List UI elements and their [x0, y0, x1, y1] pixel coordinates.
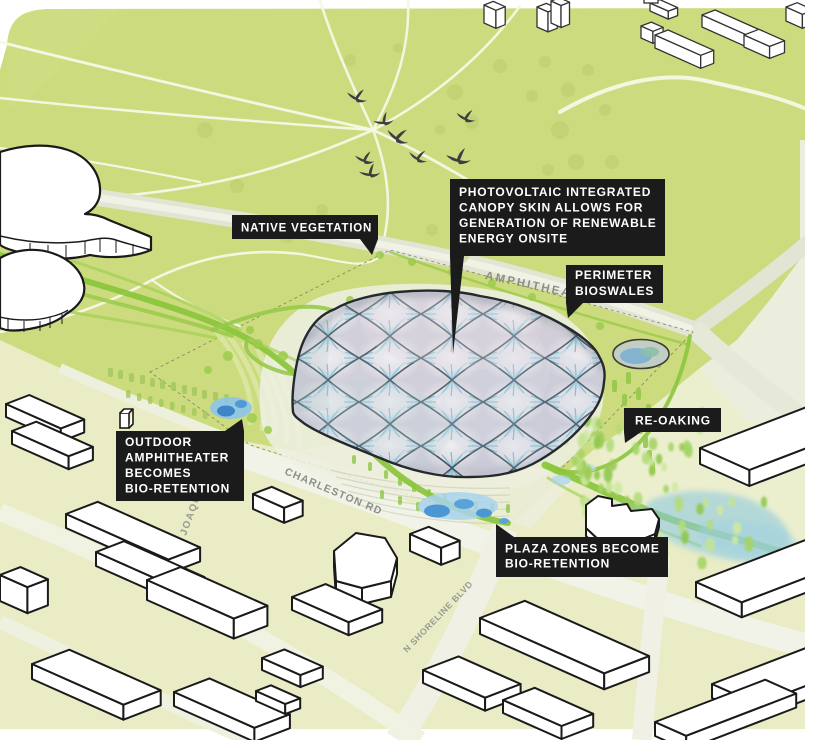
- svg-text:BECOMES: BECOMES: [125, 466, 191, 480]
- svg-text:PHOTOVOLTAIC INTEGRATED: PHOTOVOLTAIC INTEGRATED: [459, 185, 651, 199]
- svg-text:OUTDOOR: OUTDOOR: [125, 435, 192, 449]
- svg-text:PERIMETER: PERIMETER: [575, 268, 652, 282]
- svg-text:BIO-RETENTION: BIO-RETENTION: [505, 557, 610, 571]
- svg-text:ENERGY ONSITE: ENERGY ONSITE: [459, 232, 568, 246]
- svg-text:PLAZA ZONES BECOME: PLAZA ZONES BECOME: [505, 542, 660, 556]
- svg-text:NATIVE VEGETATION: NATIVE VEGETATION: [241, 223, 372, 235]
- svg-text:CANOPY SKIN ALLOWS FOR: CANOPY SKIN ALLOWS FOR: [459, 201, 643, 215]
- svg-text:AMPHITHEATER: AMPHITHEATER: [125, 451, 229, 465]
- svg-text:GENERATION OF RENEWABLE: GENERATION OF RENEWABLE: [459, 216, 657, 230]
- svg-text:BIOSWALES: BIOSWALES: [575, 284, 654, 298]
- svg-text:BIO-RETENTION: BIO-RETENTION: [125, 482, 230, 496]
- svg-text:RE-OAKING: RE-OAKING: [635, 414, 711, 428]
